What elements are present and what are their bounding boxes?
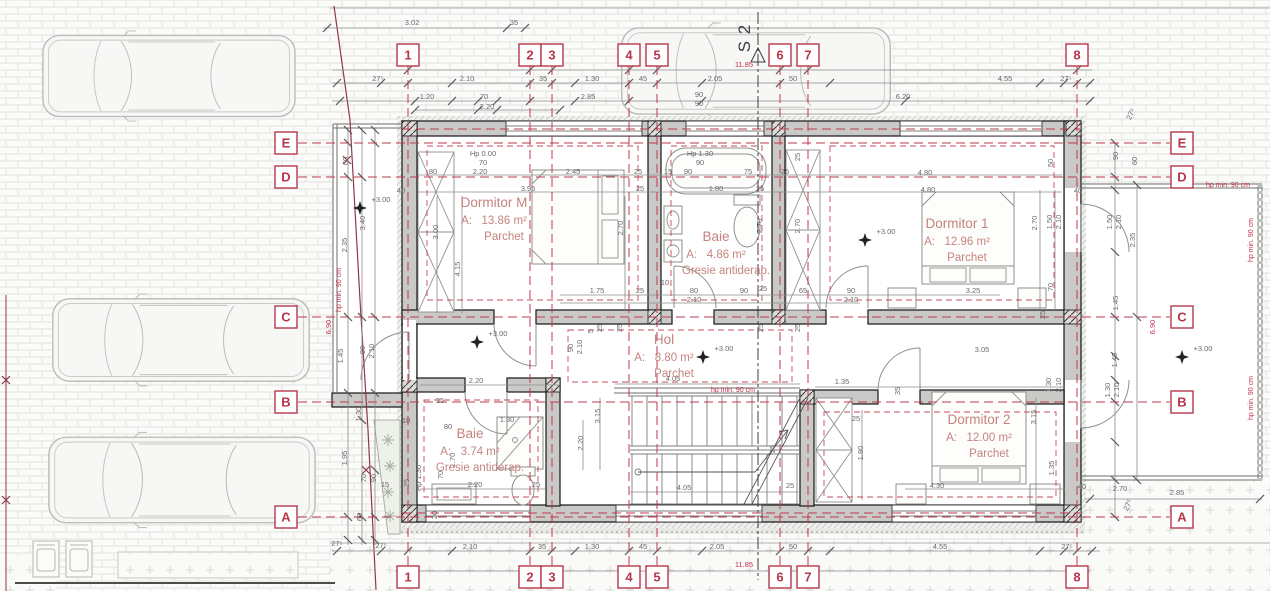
dim-text: 3.40	[358, 216, 367, 231]
dim-text: 2.10	[844, 295, 859, 304]
grid-bubble-label: A	[281, 510, 291, 525]
grid-bubble-C: C	[1171, 306, 1193, 328]
dim-text: hp min. 90 cm	[1248, 376, 1255, 420]
grid-bubble-C: C	[275, 306, 297, 328]
dim-text: 35	[538, 542, 546, 551]
grid-bubble-label: 2	[526, 570, 533, 585]
floor-plan-svg: 3.023527⁵2.10351.30452.05504.5527⁵1.2070…	[0, 0, 1270, 591]
dim-text: 80	[429, 167, 437, 176]
dim-text: 45	[639, 542, 647, 551]
grid-bubble-2: 2	[519, 566, 541, 588]
dim-text: 80	[444, 422, 452, 431]
dim-text: 3.02	[405, 18, 420, 27]
grid-bubble-label: E	[1178, 136, 1187, 151]
dim-text: 60	[355, 513, 364, 521]
dim-text: 1.20	[420, 92, 435, 101]
dim-text: 25	[1038, 311, 1047, 319]
grid-bubble-D: D	[275, 166, 297, 188]
dim-text: 70	[479, 158, 487, 167]
dim-text: Hp 1.30	[687, 149, 713, 158]
room-area: A: 8.80 m²	[634, 352, 694, 364]
room-floor-finish: Gresie antiderap.	[436, 462, 524, 474]
dim-text: 2.20	[469, 376, 484, 385]
dim-text: 1.30	[585, 74, 600, 83]
dim-text: 25	[436, 396, 444, 405]
dim-text: 25	[595, 324, 604, 332]
room-floor-finish: Gresie antiderap.	[682, 265, 770, 277]
dim-text: 2.45	[566, 167, 581, 176]
dim-text: hp min. 90 cm	[1248, 218, 1255, 262]
dim-text: 6.90	[324, 320, 333, 335]
grid-bubble-label: C	[1177, 310, 1187, 325]
elevation-value: +3.00	[372, 195, 391, 204]
dim-text: 10	[402, 416, 410, 425]
grid-bubble-label: D	[1177, 170, 1186, 185]
grid-bubble-5: 5	[646, 566, 668, 588]
dim-text: 25	[756, 324, 765, 332]
grid-bubble-B: B	[275, 391, 297, 413]
dim-text: 25	[786, 481, 794, 490]
dim-text: 2.70	[616, 221, 625, 236]
dim-text: 10	[661, 278, 669, 287]
room-name: Dormitor M	[461, 195, 528, 210]
dim-text: 50	[789, 542, 797, 551]
dim-text: 50	[1046, 159, 1055, 167]
elevation-value: +3.00	[1194, 344, 1213, 353]
elevation-value: +3.00	[715, 344, 734, 353]
dim-text: 4.80	[921, 185, 936, 194]
dim-text: 2.70	[755, 219, 764, 234]
dim-text: 1.50	[1105, 215, 1114, 230]
dim-text: 4.30	[930, 481, 945, 490]
dim-text: 2.20	[473, 167, 488, 176]
grid-bubble-label: E	[282, 136, 291, 151]
elevation-value: +3.00	[877, 227, 896, 236]
dim-text: 5	[586, 329, 595, 333]
grid-bubble-D: D	[1171, 166, 1193, 188]
dim-text: 90	[847, 286, 855, 295]
dim-text: 60	[341, 157, 350, 165]
grid-bubble-E: E	[1171, 132, 1193, 154]
dim-text: 1.30	[585, 542, 600, 551]
dim-text: 90	[369, 474, 378, 482]
dim-text: 25	[615, 324, 624, 332]
gravel-strip-bottom	[330, 545, 1080, 591]
grid-bubble-label: D	[281, 170, 290, 185]
grid-bubble-1: 1	[397, 44, 419, 66]
dim-text: 3.25	[966, 286, 981, 295]
room-name: Dormitor 2	[947, 412, 1010, 427]
dim-text: 90	[566, 344, 575, 352]
grid-bubble-2: 2	[519, 44, 541, 66]
grid-bubble-8: 8	[1066, 44, 1088, 66]
dim-text: 27⁵	[1061, 542, 1072, 551]
dim-text: 2.20	[480, 102, 495, 111]
room-name: Hol	[654, 332, 674, 347]
dim-text: 3.05	[975, 345, 990, 354]
dim-text: 2.10	[367, 344, 376, 359]
dim-text: 25	[759, 284, 767, 293]
room-area: A: 4.86 m²	[686, 249, 746, 261]
room-floor-finish: Parchet	[654, 368, 694, 380]
dim-text: 60	[1130, 157, 1139, 165]
dim-text: 25	[634, 167, 642, 176]
dim-text: 25	[793, 153, 802, 161]
grid-bubble-label: 3	[548, 570, 555, 585]
dim-text: 4.05	[677, 483, 692, 492]
section-label: S 2	[735, 24, 754, 53]
dim-text: 1.45	[1110, 353, 1119, 368]
dim-text: 1.30	[1044, 378, 1053, 393]
dim-text: 90	[695, 90, 703, 99]
gravel-area-right	[1080, 482, 1270, 591]
dim-text: 25	[793, 324, 802, 332]
dim-text: 35	[539, 74, 547, 83]
grid-bubble-label: 7	[804, 570, 811, 585]
dim-text: 2.35	[340, 238, 349, 253]
room-floor-finish: Parchet	[969, 448, 1009, 460]
grid-bubble-6: 6	[769, 44, 791, 66]
dim-text: 3.00	[431, 225, 440, 240]
dim-text: 20	[430, 511, 439, 519]
grid-bubble-4: 4	[618, 566, 640, 588]
room-area: A: 3.74 m²	[440, 446, 500, 458]
room-area: A: 13.86 m²	[461, 215, 527, 227]
dim-text: 2.70	[1113, 484, 1128, 493]
room-floor-finish: Parchet	[947, 252, 987, 264]
dim-text: 1.35	[835, 377, 850, 386]
dim-text: 1.45	[1111, 296, 1120, 311]
dim-text: 6.20	[896, 92, 911, 101]
dim-text: 11.85	[735, 60, 753, 69]
grid-bubble-7: 7	[797, 566, 819, 588]
dim-text: 3.15	[593, 409, 602, 424]
dim-text: hp min. 90 cm	[711, 387, 755, 394]
dim-text: 1.50	[1045, 215, 1054, 230]
grid-bubble-label: 3	[548, 48, 555, 63]
grid-bubble-label: 6	[776, 570, 783, 585]
dim-text: 11.85	[735, 560, 753, 569]
dim-text: 1.45	[336, 349, 345, 364]
dim-text: 2.70	[793, 219, 802, 234]
grid-bubble-1: 1	[397, 566, 419, 588]
dim-text: 2.10	[1114, 215, 1123, 230]
dim-text: 2.10	[1054, 378, 1063, 393]
grid-bubble-label: 2	[526, 48, 533, 63]
dim-text: 4.15	[453, 262, 462, 277]
dim-text: 2.10	[463, 542, 478, 551]
grid-bubble-A: A	[1171, 506, 1193, 528]
dim-text: 15	[381, 480, 389, 489]
dim-text: 4.55	[933, 542, 948, 551]
grid-bubble-E: E	[275, 132, 297, 154]
dim-text: 25	[852, 414, 860, 423]
dim-text: 2.85	[581, 92, 596, 101]
dim-text: 25	[768, 445, 777, 453]
dim-text: 25	[756, 184, 764, 193]
dim-text: 25	[402, 479, 411, 487]
dim-text: 4.80	[918, 168, 933, 177]
room-name: Baie	[702, 229, 729, 244]
floor-plan-canvas: 3.023527⁵2.10351.30452.05504.5527⁵1.2070…	[0, 0, 1270, 591]
dim-text: 6.90	[1148, 320, 1157, 335]
room-name: Baie	[456, 426, 483, 441]
dim-text: 65	[799, 286, 807, 295]
dim-text: 3.95	[521, 184, 536, 193]
dim-text: 45	[639, 74, 647, 83]
car-top-left	[43, 31, 295, 121]
dim-text: 40	[1078, 482, 1086, 491]
room-name: Dormitor 1	[925, 216, 988, 231]
balcony-floor	[333, 124, 402, 407]
dim-text: 2.10	[575, 340, 584, 355]
dim-text: 2.10	[1054, 215, 1063, 230]
grid-bubble-A: A	[275, 506, 297, 528]
dim-text: 1.80	[856, 446, 865, 461]
grid-bubble-label: 4	[625, 570, 633, 585]
dim-text: 2.10	[1112, 383, 1121, 398]
dim-text: 2.10	[460, 74, 475, 83]
dim-text: hp min. 90 cm	[1206, 182, 1250, 189]
grid-bubble-label: C	[281, 310, 291, 325]
dim-text: 1.95	[340, 451, 349, 466]
wardrobe-stairs	[816, 398, 852, 502]
bed-dormitor-m	[532, 170, 624, 264]
dim-text: 70	[480, 92, 488, 101]
gravel-patch-left	[118, 552, 298, 578]
dim-text: 70	[1046, 283, 1055, 291]
sink-bath-top	[664, 206, 682, 262]
dim-text: 3.15	[1029, 410, 1038, 425]
car-middle-left	[53, 294, 309, 386]
grid-bubble-label: B	[1177, 395, 1186, 410]
elevation-value: +3.00	[489, 329, 508, 338]
dim-text: 70	[359, 474, 368, 482]
dim-text: 25	[636, 184, 644, 193]
dim-text: 90	[1111, 152, 1120, 160]
dim-text: 1.75	[590, 286, 605, 295]
grid-bubble-B: B	[1171, 391, 1193, 413]
dim-text: 40	[397, 186, 405, 195]
dim-text: 90	[684, 167, 692, 176]
grid-bubble-8: 8	[1066, 566, 1088, 588]
grid-bubble-label: 4	[625, 48, 633, 63]
dim-text: 2.10	[687, 295, 702, 304]
dim-text: 40	[1074, 186, 1082, 195]
dim-text: 50	[789, 74, 797, 83]
car-top-center	[622, 23, 891, 119]
dim-text: 1.35	[1047, 461, 1056, 476]
dim-text: 90	[740, 286, 748, 295]
dim-text: 2.20	[576, 436, 585, 451]
dim-text: 75	[744, 167, 752, 176]
dim-text: hp min. 90 cm	[336, 268, 343, 312]
dim-text: 2.05	[708, 74, 723, 83]
dim-text: 1.30	[500, 415, 515, 424]
grid-bubble-label: 5	[653, 570, 660, 585]
grid-bubble-label: A	[1177, 510, 1187, 525]
dim-text: 2.05	[710, 542, 725, 551]
grid-bubble-label: 1	[404, 570, 411, 585]
dim-text: 90	[695, 99, 703, 108]
dim-text: 80	[690, 286, 698, 295]
dim-text: Hp 0.00	[470, 149, 496, 158]
section-label-group: S 2	[735, 24, 754, 53]
dim-text: 2.85	[1170, 488, 1185, 497]
dim-text: 4.55	[998, 74, 1013, 83]
dim-text: 15	[664, 167, 672, 176]
grid-bubble-4: 4	[618, 44, 640, 66]
grid-bubble-label: 1	[404, 48, 411, 63]
dim-text: 1.30	[1103, 383, 1112, 398]
grid-bubble-3: 3	[541, 566, 563, 588]
dim-text: 90	[696, 158, 704, 167]
room-area: A: 12.96 m²	[924, 236, 990, 248]
dim-text: 1.30	[354, 407, 363, 422]
dim-text: 27⁵	[1060, 74, 1071, 83]
dim-text: 90	[358, 346, 367, 354]
dim-text: 27⁵	[375, 541, 386, 550]
grid-bubble-label: 8	[1073, 48, 1080, 63]
dim-text: 2.70	[1030, 216, 1039, 231]
dim-text: 1.80	[709, 184, 724, 193]
grid-bubble-5: 5	[646, 44, 668, 66]
dim-text: 25	[636, 286, 644, 295]
dim-text: 25	[532, 480, 540, 489]
grid-bubble-label: 5	[653, 48, 660, 63]
dim-text: 35	[893, 387, 902, 395]
dim-text: 2.20	[468, 480, 483, 489]
grid-bubble-6: 6	[769, 566, 791, 588]
grid-bubble-label: 6	[776, 48, 783, 63]
dim-text: 35	[510, 18, 518, 27]
grid-bubble-label: 7	[804, 48, 811, 63]
grid-bubble-label: B	[281, 395, 290, 410]
dim-text: 25	[781, 167, 789, 176]
dim-text: 2.35	[1128, 233, 1137, 248]
dim-text: Hp 1.30	[414, 465, 423, 491]
dim-text: 27⁵	[331, 539, 342, 548]
grid-bubble-label: 8	[1073, 570, 1080, 585]
grid-bubble-3: 3	[541, 44, 563, 66]
room-area: A: 12.00 m²	[946, 432, 1012, 444]
dim-text: 27⁵	[372, 74, 383, 83]
room-floor-finish: Parchet	[484, 231, 524, 243]
grid-bubble-7: 7	[797, 44, 819, 66]
